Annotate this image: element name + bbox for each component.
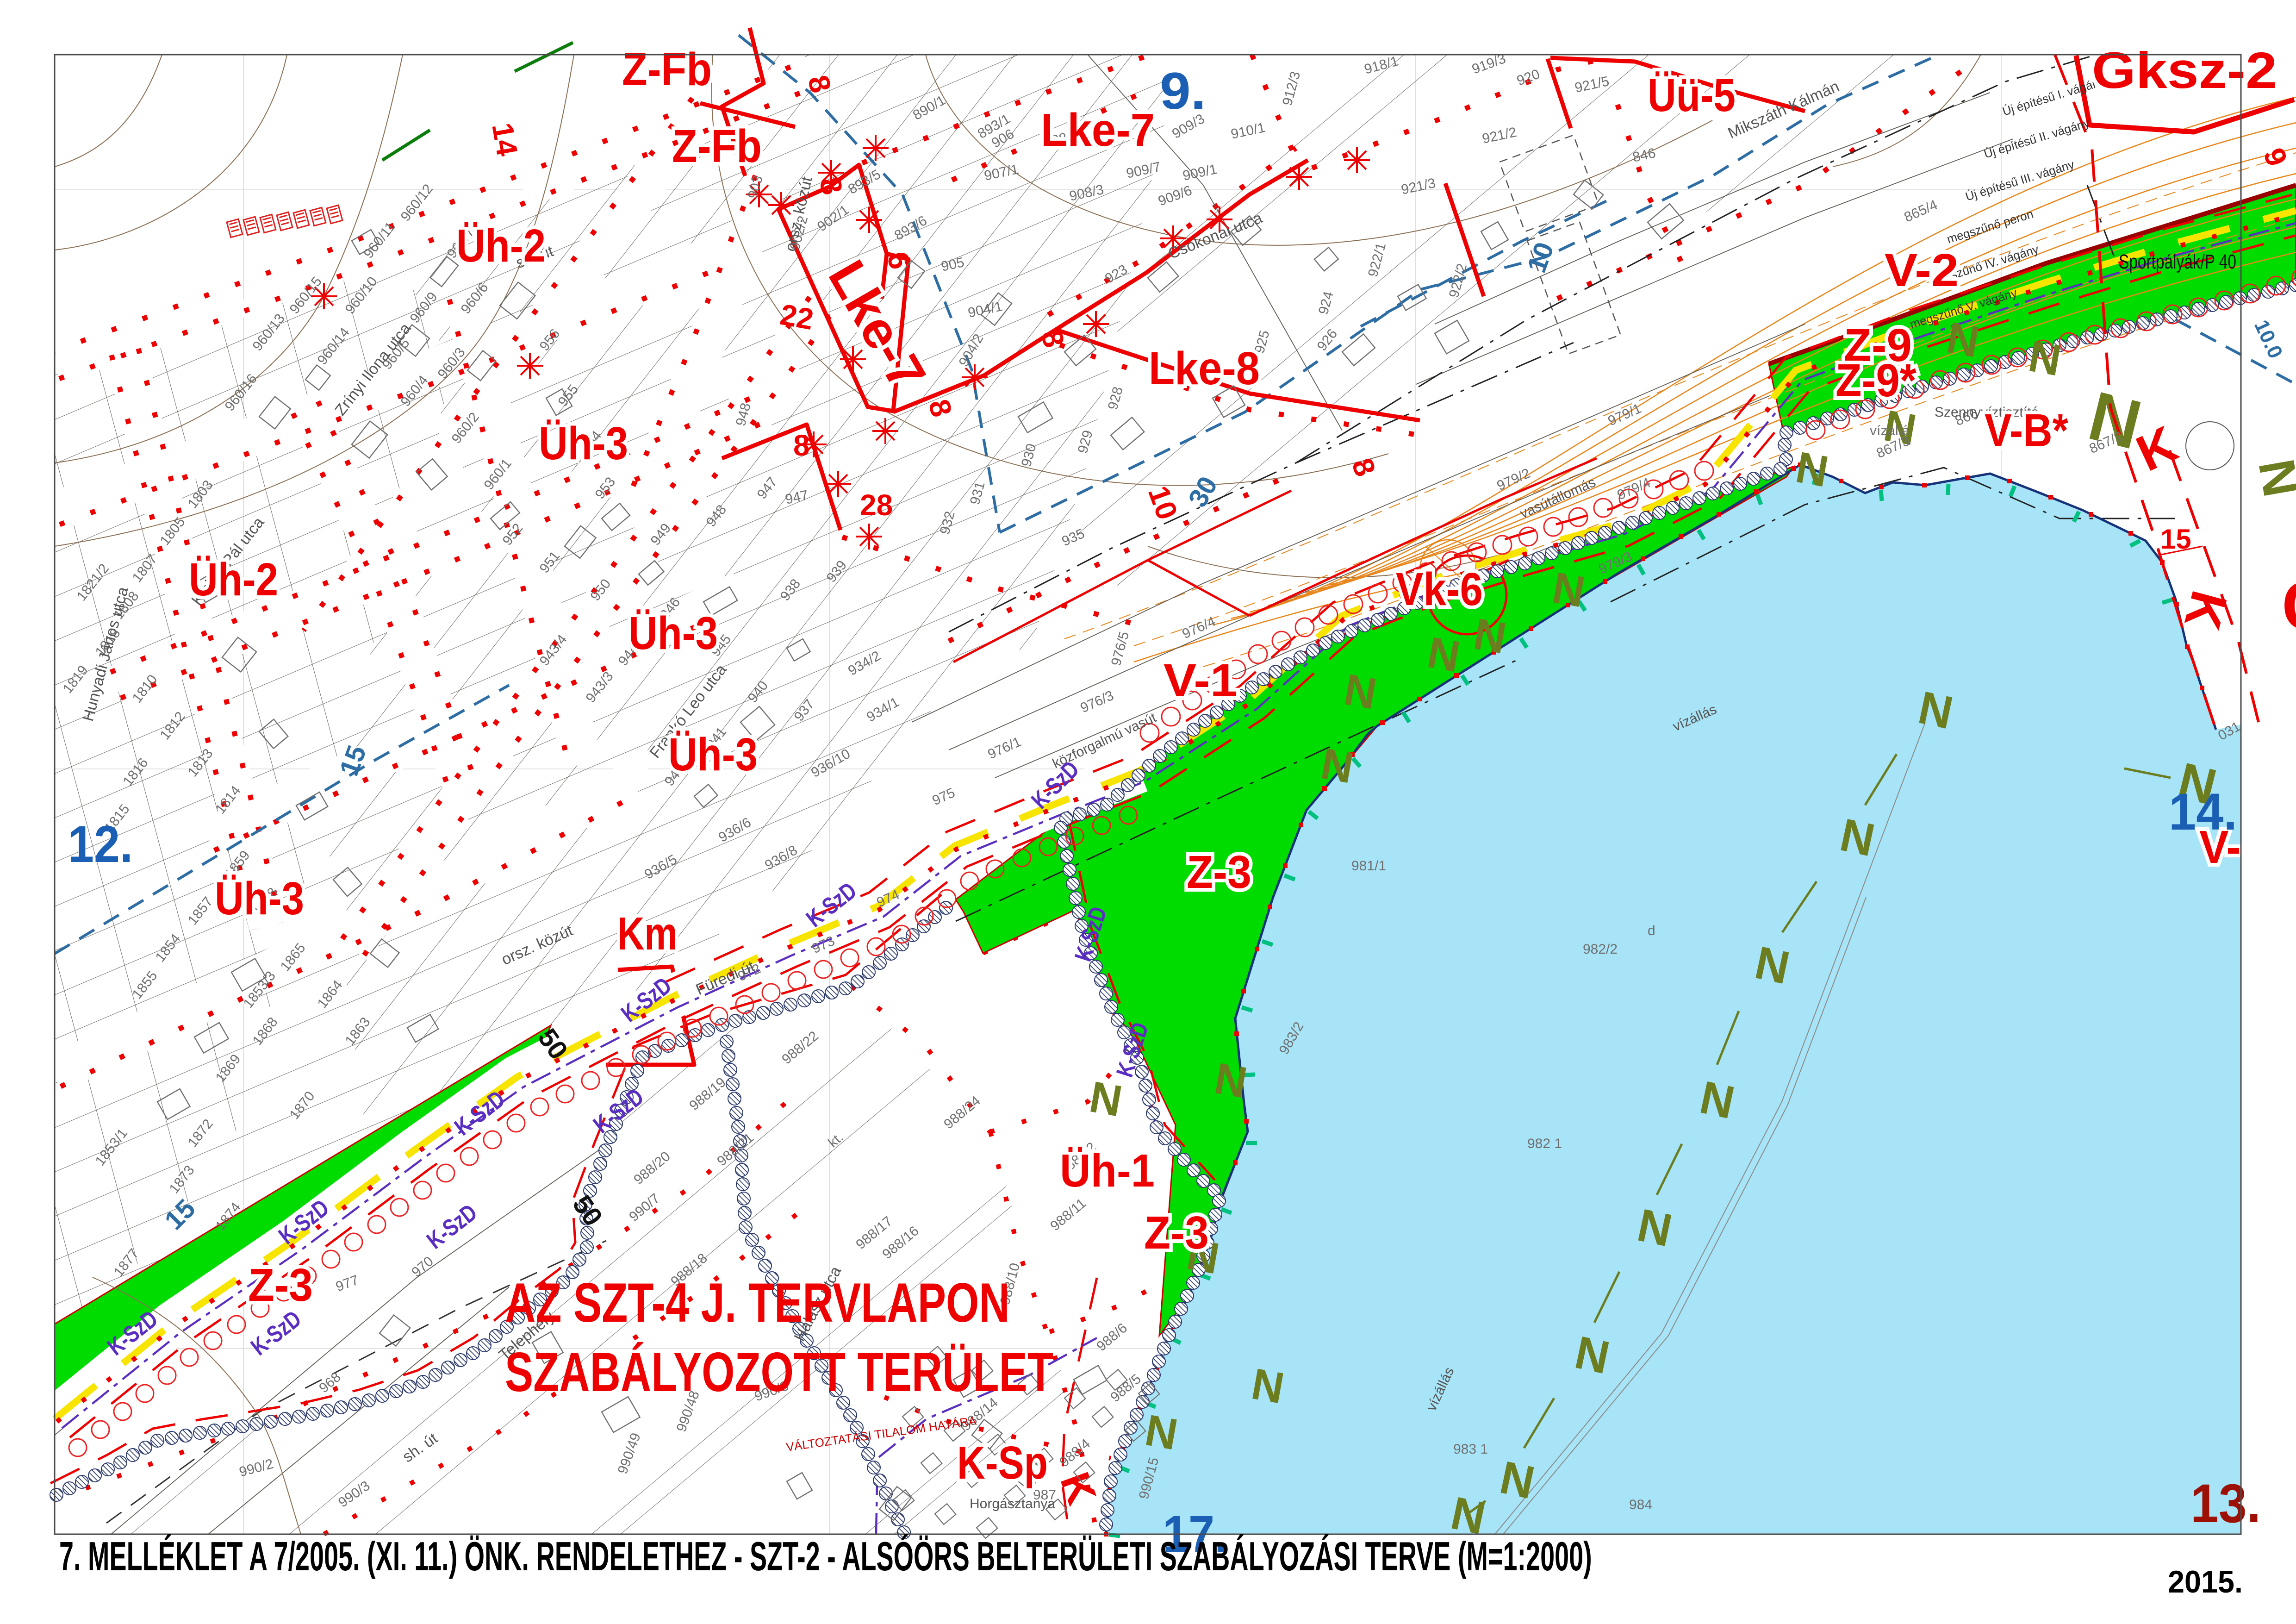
svg-text:Üh-3: Üh-3 <box>668 728 758 780</box>
svg-text:Z-3: Z-3 <box>1187 846 1251 898</box>
svg-text:22: 22 <box>778 298 816 336</box>
svg-text:d: d <box>1648 923 1655 938</box>
svg-text:984: 984 <box>1629 1497 1652 1512</box>
svg-text:8: 8 <box>793 429 810 462</box>
svg-text:14.: 14. <box>2169 783 2237 841</box>
svg-text:13.: 13. <box>2190 1473 2261 1534</box>
svg-text:981/1: 981/1 <box>1351 858 1386 874</box>
svg-text:Km: Km <box>617 908 678 960</box>
svg-text:Sportpályák/P 40: Sportpályák/P 40 <box>2119 251 2236 273</box>
svg-text:AZ SZT-4 J. TERVLAPON: AZ SZT-4 J. TERVLAPON <box>505 1271 1010 1334</box>
svg-text:Üh-2: Üh-2 <box>456 219 546 271</box>
svg-text:Z-Fb: Z-Fb <box>672 120 762 172</box>
svg-text:982 1: 982 1 <box>1527 1136 1562 1151</box>
svg-text:Üh-3: Üh-3 <box>215 872 304 924</box>
svg-text:C: C <box>2282 567 2296 644</box>
svg-text:Üü-5: Üü-5 <box>1648 69 1736 121</box>
svg-text:Üh-3: Üh-3 <box>539 417 628 469</box>
svg-text:Vk-6: Vk-6 <box>1396 563 1483 615</box>
svg-text:V-1: V-1 <box>1164 654 1238 706</box>
svg-text:Üh-1: Üh-1 <box>1060 1145 1155 1197</box>
svg-text:Z-9*: Z-9* <box>1836 355 1916 406</box>
svg-text:Üh-2: Üh-2 <box>189 553 278 605</box>
svg-text:Horgásztanya: Horgásztanya <box>970 1496 1055 1512</box>
svg-text:12.: 12. <box>68 815 133 873</box>
svg-text:Üh-3: Üh-3 <box>628 607 718 659</box>
svg-text:SZABÁLYOZOTT TERÜLET: SZABÁLYOZOTT TERÜLET <box>505 1341 1053 1403</box>
svg-text:V-2: V-2 <box>1885 244 1959 296</box>
svg-text:Lke-7: Lke-7 <box>1041 104 1155 156</box>
svg-text:Lke-8: Lke-8 <box>1149 343 1260 394</box>
svg-text:983 1: 983 1 <box>1453 1442 1488 1457</box>
svg-text:vízállá: vízállá <box>1870 423 1909 438</box>
svg-text:982/2: 982/2 <box>1583 942 1618 957</box>
svg-text:2015.: 2015. <box>2168 1565 2243 1600</box>
svg-text:7. MELLÉKLET A 7/2005. (XI. 11: 7. MELLÉKLET A 7/2005. (XI. 11.) ÖNK. RE… <box>59 1533 1592 1579</box>
svg-text:Gksz-2: Gksz-2 <box>2092 42 2277 99</box>
svg-text:V-B*: V-B* <box>1985 405 2068 456</box>
svg-text:K-Sp: K-Sp <box>957 1437 1048 1489</box>
svg-text:9.: 9. <box>1160 62 1206 120</box>
svg-text:Z-3: Z-3 <box>1144 1207 1209 1259</box>
svg-text:14: 14 <box>485 120 524 159</box>
svg-text:28: 28 <box>860 488 893 522</box>
svg-text:Z-3: Z-3 <box>248 1259 313 1311</box>
svg-text:Z-Fb: Z-Fb <box>622 44 712 95</box>
